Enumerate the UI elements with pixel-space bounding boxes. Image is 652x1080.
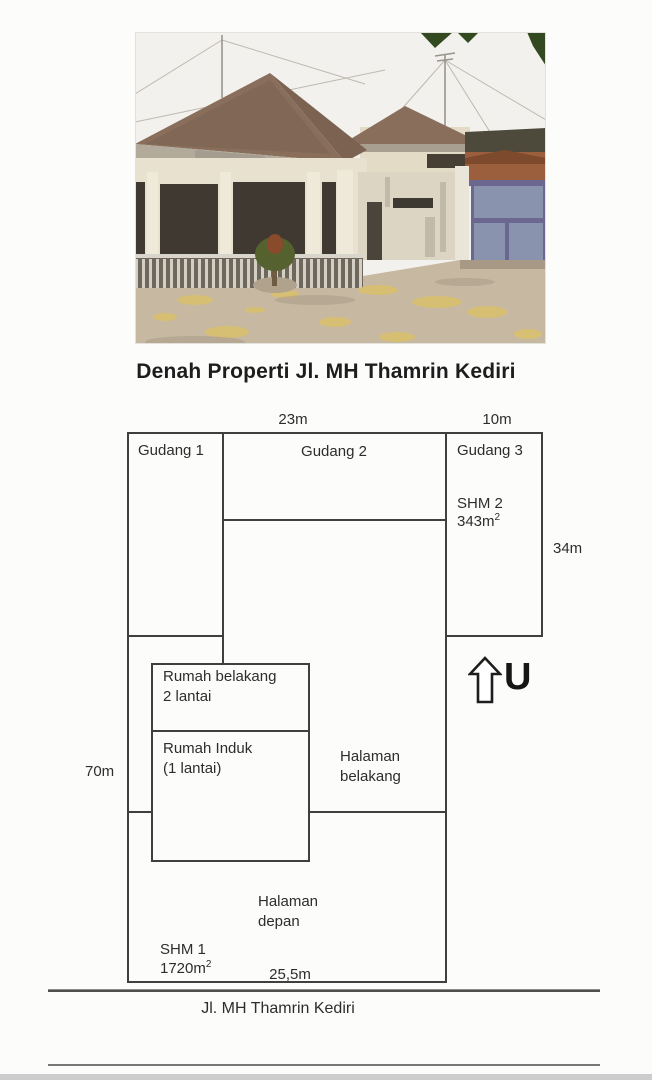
- plan-house-divider-line: [151, 730, 310, 732]
- rear-building-fascia: [349, 144, 471, 152]
- halaman-belakang-line2: belakang: [340, 767, 401, 787]
- dimension-front-width: 25,5m: [240, 965, 340, 985]
- plan-left-tick-line: [127, 811, 153, 813]
- rumah-belakang-line1: Rumah belakang: [163, 667, 276, 687]
- plan-gudang2-bottom-line: [222, 519, 447, 521]
- dimension-top-right-width: 10m: [447, 410, 547, 430]
- shm2-area-sup: 2: [495, 512, 501, 523]
- room-gudang1: Gudang 1: [138, 441, 204, 461]
- north-arrow-icon: [468, 656, 502, 704]
- halaman-depan-line2: depan: [258, 912, 318, 932]
- rumah-induk-line1: Rumah Induk: [163, 739, 252, 759]
- shm1-name: SHM 1: [160, 940, 206, 960]
- road-line: [48, 989, 600, 992]
- plan-parcel-shm2-outline: [447, 432, 543, 637]
- halaman-belakang-line1: Halaman: [340, 747, 401, 767]
- dimension-right-height: 34m: [553, 539, 582, 559]
- page-title: Denah Properti Jl. MH Thamrin Kediri: [0, 360, 652, 384]
- plan-divider-gudang: [222, 432, 224, 664]
- side-door: [367, 202, 382, 260]
- property-listing-image: Denah Properti Jl. MH Thamrin Kediri 23m…: [0, 0, 652, 1080]
- room-halaman-depan: Halaman depan: [258, 892, 318, 933]
- north-indicator: U: [468, 656, 538, 704]
- room-halaman-belakang: Halaman belakang: [340, 747, 401, 788]
- property-photo: [135, 32, 546, 344]
- bottom-strip: [0, 1074, 652, 1080]
- street-label: Jl. MH Thamrin Kediri: [128, 1000, 428, 1018]
- dimension-top-width: 23m: [243, 410, 343, 430]
- north-label: U: [504, 658, 531, 696]
- halaman-depan-line1: Halaman: [258, 892, 318, 912]
- gate-pillar: [455, 166, 469, 262]
- room-rumah-induk: Rumah Induk (1 lantai): [163, 739, 252, 780]
- shm1-area-sup: 2: [206, 959, 212, 970]
- room-gudang3: Gudang 3: [457, 441, 523, 461]
- shm2-area: 343m2: [457, 512, 500, 532]
- dimension-left-height: 70m: [85, 762, 114, 782]
- footer-line: [48, 1064, 600, 1066]
- rumah-belakang-line2: 2 lantai: [163, 687, 276, 707]
- side-grille: [393, 198, 433, 208]
- room-gudang2: Gudang 2: [284, 442, 384, 462]
- fence-rail: [135, 254, 363, 258]
- plan-gudang1-bottom-line: [127, 635, 224, 637]
- rumah-induk-line2: (1 lantai): [163, 759, 252, 779]
- gate-ground-shadow: [460, 260, 546, 269]
- shm1-area: 1720m2: [160, 959, 211, 979]
- shm1-area-value: 1720m: [160, 960, 206, 977]
- room-rumah-belakang: Rumah belakang 2 lantai: [163, 667, 276, 708]
- rear-building-vent: [427, 154, 465, 168]
- shm2-area-value: 343m: [457, 513, 495, 530]
- plan-halaman-belakang-bottom-line: [308, 811, 447, 813]
